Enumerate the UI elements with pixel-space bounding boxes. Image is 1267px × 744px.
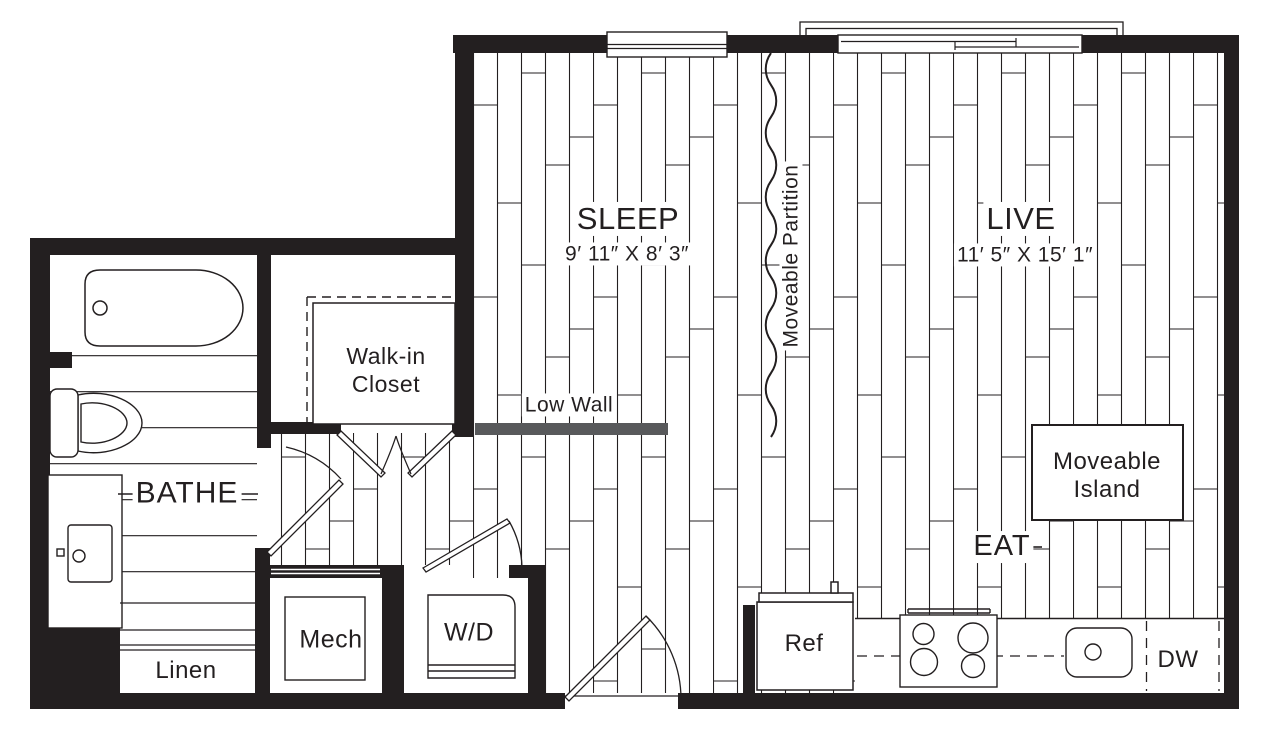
wall-ref-stub <box>743 605 755 693</box>
moveable-partition-label: Moveable Partition <box>779 162 802 351</box>
window <box>607 32 727 57</box>
wall-sleep-left <box>455 35 473 437</box>
sliding-door-panel <box>838 35 1082 53</box>
wall-right <box>1224 35 1239 709</box>
bathtub <box>85 270 243 346</box>
walk-in-closet-label: Walk-in Closet <box>343 342 428 398</box>
wall-plumbing-mass <box>30 628 120 709</box>
wall-bath-closet <box>257 255 271 448</box>
walk-in-closet-line2: Closet <box>346 370 425 398</box>
wall-mech-wd-divider <box>382 565 404 693</box>
linen-shelves <box>120 603 256 650</box>
eat-label: EAT <box>970 531 1033 563</box>
wall-bath-top <box>30 238 473 255</box>
burner <box>911 649 938 676</box>
moveable-island-line2: Island <box>1053 476 1161 504</box>
moveable-island-line1: Moveable <box>1053 448 1161 476</box>
wall-mech-top <box>256 565 382 578</box>
moveable-island-label: Moveable Island <box>1050 448 1164 504</box>
floor-plan-drawing <box>0 0 1267 744</box>
dw-label: DW <box>1155 647 1202 673</box>
burner <box>913 624 934 645</box>
live-room-label: LIVE <box>983 202 1058 236</box>
wall-wd-right <box>528 565 545 693</box>
wall-tub-stub <box>48 352 72 368</box>
low-wall-label: Low Wall <box>522 393 616 416</box>
sink-drain <box>73 550 85 562</box>
floor-plan: SLEEP 9′ 11″ X 8′ 3″ LIVE 11′ 5″ X 15′ 1… <box>0 0 1267 744</box>
mech-room-label: Mech <box>296 626 365 654</box>
sleep-room-label: SLEEP <box>574 202 682 236</box>
wd-room-label: W/D <box>441 619 497 647</box>
sleep-dimensions: 9′ 11″ X 8′ 3″ <box>562 242 692 265</box>
faucet <box>57 549 64 556</box>
sink-drain <box>1085 644 1101 660</box>
burner <box>958 623 988 653</box>
stove <box>900 609 997 687</box>
walk-in-closet-line1: Walk-in <box>346 342 425 370</box>
vanity-sink <box>48 475 122 628</box>
live-dimensions: 11′ 5″ X 15′ 1″ <box>954 243 1096 266</box>
tub-drain <box>93 301 107 315</box>
wall-bottom-right <box>678 693 1239 709</box>
kitchen-sink <box>1066 628 1132 677</box>
low-wall-bar <box>475 423 668 435</box>
burner <box>962 655 985 678</box>
bathe-room-label: BATHE <box>133 477 242 510</box>
linen-label: Linen <box>152 658 219 684</box>
ref-label: Ref <box>782 631 827 657</box>
